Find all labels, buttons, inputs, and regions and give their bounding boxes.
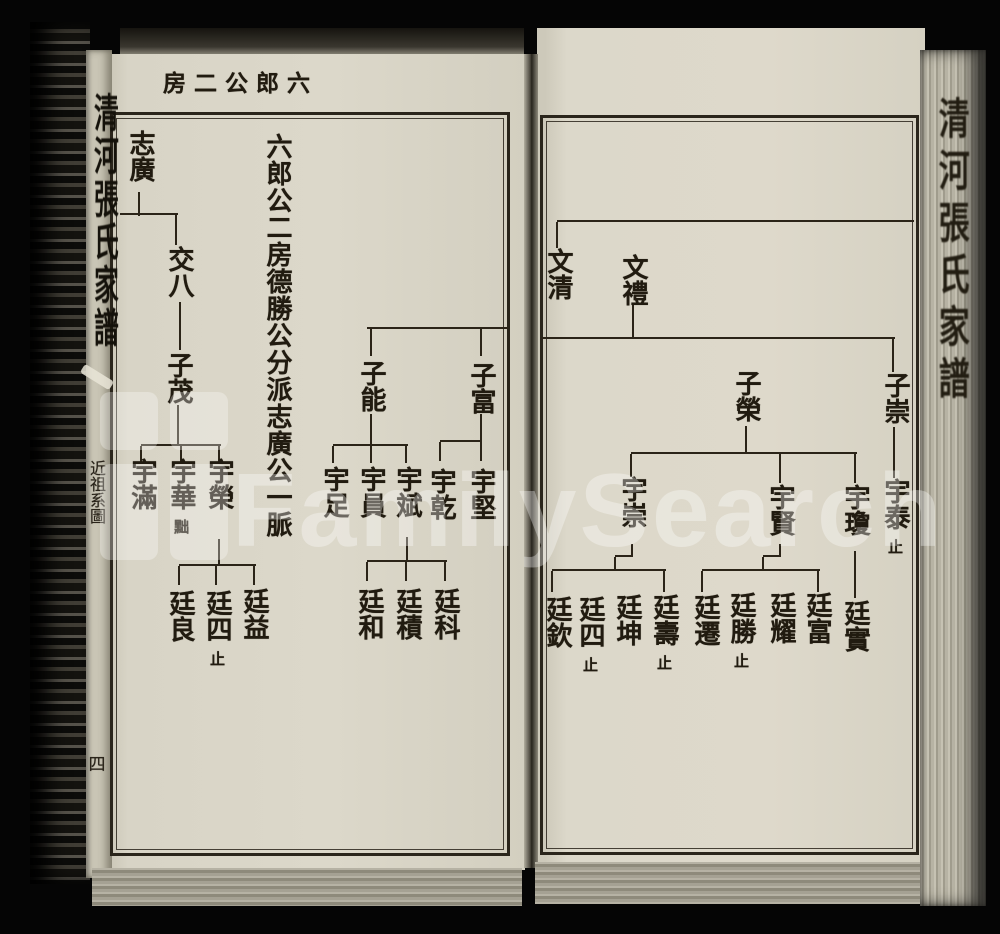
tree-line: [701, 571, 703, 592]
tree-line: [480, 414, 482, 441]
tree-line: [615, 555, 633, 557]
tree-line: [177, 405, 179, 446]
tree-line: [253, 566, 255, 585]
tree-line: [632, 305, 634, 338]
tree-line: [179, 564, 256, 566]
book-photo: 房二公郎六 六郎公二房德勝公分派志廣公一脈 近祖系圖 四 清河張氏家譜 清河張氏…: [0, 0, 1000, 934]
tree-node: 廷益: [240, 588, 268, 640]
page-stack-bottom-left: [92, 868, 522, 906]
tree-node: 宇堅: [467, 468, 495, 520]
tree-node: 志廣: [126, 130, 154, 182]
tree-line: [779, 454, 781, 483]
page-number: 四: [89, 750, 106, 775]
tree-line: [406, 537, 408, 562]
tree-line: [178, 566, 180, 585]
tree-node: 廷四止: [576, 596, 604, 672]
tree-line: [215, 566, 217, 585]
tree-node: 子榮: [732, 370, 760, 422]
tree-node: 子能: [357, 360, 385, 412]
tree-node: 宇泰止: [881, 478, 909, 554]
tree-line: [557, 220, 914, 222]
tree-line: [120, 213, 178, 215]
tree-node: 宇華黜: [167, 458, 195, 534]
tree-node: 文禮: [619, 254, 647, 306]
tree-node: 廷遷: [691, 594, 719, 646]
tree-node: 宇崇: [618, 476, 646, 528]
node-annotation: 止: [732, 653, 750, 668]
tree-line: [405, 562, 407, 581]
node-annotation: 止: [655, 655, 673, 670]
spine-title: 清河張氏家譜: [86, 92, 122, 350]
tree-line: [370, 329, 372, 356]
tree-node: 廷良: [166, 590, 194, 642]
tree-line: [218, 539, 220, 565]
tree-node: 子富: [467, 362, 495, 414]
tree-node: 交八: [165, 246, 193, 298]
tree-line: [480, 329, 482, 356]
tree-node: 廷耀: [767, 592, 795, 644]
tree-line: [745, 426, 747, 453]
tree-node: 子崇: [881, 372, 909, 424]
tree-line: [702, 569, 820, 571]
tree-node: 子茂: [164, 352, 192, 404]
tree-line: [444, 562, 446, 581]
node-annotation: 黜: [172, 519, 190, 534]
tree-node: 宇賢: [766, 484, 794, 536]
tree-line: [367, 560, 447, 562]
tree-line: [763, 555, 781, 557]
tree-node: 廷欽: [543, 596, 571, 648]
node-annotation: 止: [886, 539, 904, 554]
tree-line: [551, 571, 553, 592]
tree-node: 廷實: [841, 600, 869, 652]
node-annotation: 止: [208, 651, 226, 666]
tree-line: [440, 440, 482, 442]
tree-line: [892, 339, 894, 372]
tree-line: [663, 571, 665, 592]
tree-line: [367, 327, 508, 329]
tree-node: 宇員: [357, 466, 385, 518]
tree-line: [541, 337, 895, 339]
tree-node: 廷和: [355, 588, 383, 640]
tree-line: [179, 302, 181, 350]
tree-line: [370, 446, 372, 463]
tree-node: 廷坤: [613, 594, 641, 646]
tree-line: [332, 446, 334, 463]
tree-line: [405, 446, 407, 463]
tree-line: [854, 454, 856, 483]
tree-line: [552, 569, 666, 571]
fore-edge-title: 清河張氏家譜: [929, 96, 974, 408]
eyebrow-title: 房二公郎六: [163, 64, 318, 98]
tree-node: 宇瓊: [841, 484, 869, 536]
tree-node: 廷四止: [203, 590, 231, 666]
tree-line: [556, 222, 558, 248]
tree-node: 廷富: [803, 592, 831, 644]
book-spine: [30, 22, 90, 884]
tree-node: 宇滿: [128, 458, 156, 510]
tree-line: [630, 454, 632, 477]
tree-line: [631, 452, 857, 454]
tree-node: 宇乾: [427, 468, 455, 520]
tree-line: [893, 427, 895, 478]
tree-line: [366, 562, 368, 581]
intro-text: 六郎公二房德勝公分派志廣公一脈: [262, 133, 292, 538]
tree-node: 宇斌: [393, 466, 421, 518]
tree-line: [370, 414, 372, 445]
tree-line: [175, 215, 177, 245]
node-annotation: 止: [581, 657, 599, 672]
center-gutter: [524, 54, 538, 868]
tree-node: 文清: [544, 248, 572, 300]
tree-line: [439, 442, 441, 461]
tree-line: [480, 442, 482, 461]
tree-node: 廷壽止: [650, 594, 678, 670]
tree-line: [854, 551, 856, 598]
tree-line: [817, 571, 819, 592]
center-margin-label: 近祖系圖: [84, 460, 108, 524]
tree-node: 廷積: [393, 588, 421, 640]
tree-node: 宇足: [320, 466, 348, 518]
page-edge-shadow: [120, 28, 524, 55]
tree-node: 宇榮: [205, 458, 233, 510]
tree-node: 廷科: [431, 588, 459, 640]
page-stack-bottom-right: [535, 862, 985, 904]
tree-node: 廷勝止: [727, 592, 755, 668]
